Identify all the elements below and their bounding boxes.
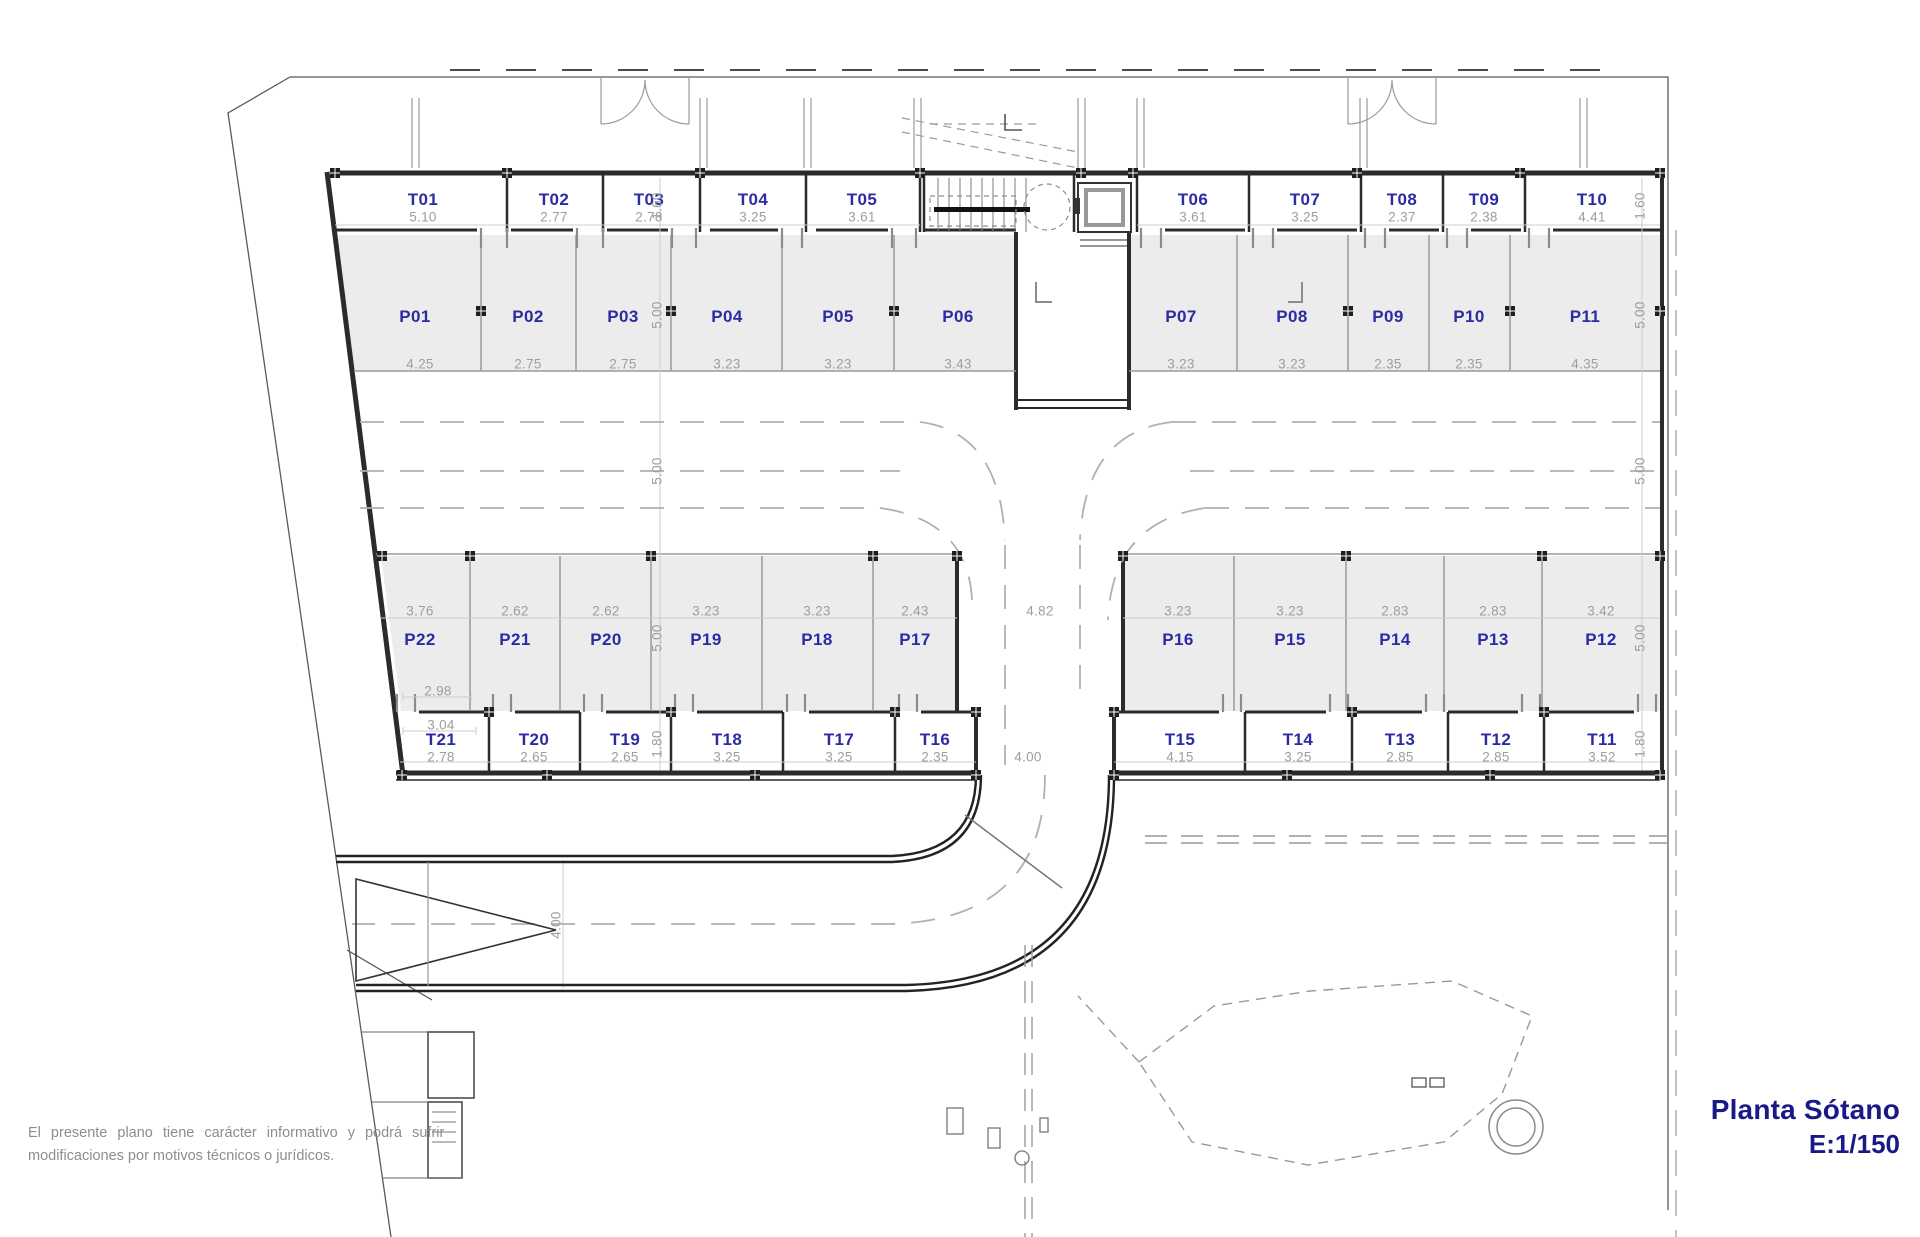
parking-dim: 2.43 — [901, 604, 928, 619]
height-dim: 1.80 — [650, 730, 665, 757]
turn-circle-dashed — [1024, 184, 1070, 230]
disclaimer-line1: El presente plano tiene carácter informa… — [28, 1122, 498, 1145]
parking-dim: 3.76 — [406, 604, 433, 619]
parking-dim: 3.23 — [824, 357, 851, 372]
parking-dim: 2.35 — [1455, 357, 1482, 372]
storage-dim: 3.25 — [825, 750, 852, 765]
parking-label: P10 — [1453, 307, 1484, 327]
parking-label: P04 — [711, 307, 742, 327]
storage-label: T14 — [1283, 730, 1314, 750]
storage-label: T04 — [738, 190, 769, 210]
parking-dim: 3.23 — [1167, 357, 1194, 372]
parking-dim: 3.43 — [944, 357, 971, 372]
curved-road — [336, 775, 1114, 991]
depth-dim: 5.00 — [1633, 624, 1648, 651]
storage-dim: 2.77 — [540, 210, 567, 225]
elevator-cab — [1086, 190, 1123, 225]
parking-label: P19 — [690, 630, 721, 650]
depth-dim: 5.00 — [650, 624, 665, 651]
garden-icons — [1412, 1078, 1444, 1087]
storage-dim: 4.41 — [1578, 210, 1605, 225]
parking-label: P12 — [1585, 630, 1616, 650]
parking-dim: 2.75 — [514, 357, 541, 372]
plan-scale: E:1/150 — [1540, 1129, 1900, 1160]
parking-label: P17 — [899, 630, 930, 650]
parking-label: P05 — [822, 307, 853, 327]
parking-dim: 2.62 — [592, 604, 619, 619]
parking-dim: 4.25 — [406, 357, 433, 372]
storage-dim: 3.61 — [848, 210, 875, 225]
storage-label: T12 — [1481, 730, 1512, 750]
disclaimer-line2: modificaciones por motivos técnicos o ju… — [28, 1145, 498, 1168]
drain-icons — [947, 1108, 1048, 1165]
road-joint — [965, 815, 1062, 888]
parking-dim: 3.23 — [803, 604, 830, 619]
storage-label: T15 — [1165, 730, 1196, 750]
storage-dim: 3.25 — [739, 210, 766, 225]
parking-label: P20 — [590, 630, 621, 650]
parking-label: P15 — [1274, 630, 1305, 650]
parking-dim: 2.83 — [1381, 604, 1408, 619]
storage-label: T13 — [1385, 730, 1416, 750]
storage-dim: 3.25 — [1291, 210, 1318, 225]
parking-label: P21 — [499, 630, 530, 650]
exterior-dashed — [1025, 836, 1668, 1237]
corridor-dim: 4.00 — [549, 911, 564, 938]
storage-label: T10 — [1577, 190, 1608, 210]
height-dim: 1.60 — [1633, 192, 1648, 219]
storage-dim: 3.25 — [713, 750, 740, 765]
height-dim: 1.60 — [650, 192, 665, 219]
storage-label: T16 — [920, 730, 951, 750]
parking-label: P07 — [1165, 307, 1196, 327]
parking-dim: 2.83 — [1479, 604, 1506, 619]
stall-sub-dim: 2.98 — [424, 684, 451, 699]
parking-label: P02 — [512, 307, 543, 327]
storage-label: T17 — [824, 730, 855, 750]
storage-dim: 2.37 — [1388, 210, 1415, 225]
storage-label: T09 — [1469, 190, 1500, 210]
parking-dim: 3.23 — [1278, 357, 1305, 372]
storage-label: T07 — [1290, 190, 1321, 210]
storage-label: T11 — [1587, 730, 1617, 750]
ramp-arrow — [356, 879, 556, 981]
storage-dim: 2.85 — [1482, 750, 1509, 765]
storage-label: T19 — [610, 730, 641, 750]
parking-dim: 2.35 — [1374, 357, 1401, 372]
title-block: Planta Sótano E:1/150 — [1540, 1094, 1900, 1160]
elevator-door — [1074, 198, 1080, 214]
road-depth-dim: 5.00 — [1633, 457, 1648, 484]
disclaimer-note: El presente plano tiene carácter informa… — [28, 1122, 498, 1168]
road-dim: 4.00 — [1014, 750, 1041, 765]
pool-circles — [1489, 1100, 1543, 1154]
parking-label: P16 — [1162, 630, 1193, 650]
parking-label: P11 — [1570, 307, 1601, 327]
storage-dim: 4.15 — [1166, 750, 1193, 765]
parking-dim: 3.23 — [1164, 604, 1191, 619]
storage-label: T20 — [519, 730, 550, 750]
parking-dim: 3.23 — [1276, 604, 1303, 619]
plan-title: Planta Sótano — [1540, 1094, 1900, 1126]
parking-dim: 4.35 — [1571, 357, 1598, 372]
parking-label: P14 — [1379, 630, 1410, 650]
storage-label: T05 — [847, 190, 878, 210]
storage-dim: 3.61 — [1179, 210, 1206, 225]
storage-dim: 5.10 — [409, 210, 436, 225]
upper-ramp-dashed — [902, 118, 1078, 168]
parking-dim: 2.75 — [609, 357, 636, 372]
elevator-pit-lines — [1080, 240, 1127, 246]
parking-dim: 3.23 — [692, 604, 719, 619]
depth-dim: 5.00 — [650, 301, 665, 328]
parking-label: P03 — [607, 307, 638, 327]
floor-plan-sheet: T01 5.10 T02 2.77 T03 2.78 T04 3.25 T05 … — [0, 0, 1920, 1237]
storage-dim: 3.25 — [1284, 750, 1311, 765]
storage-label: T08 — [1387, 190, 1418, 210]
storage-dim: 3.52 — [1588, 750, 1615, 765]
parking-dim: 2.62 — [501, 604, 528, 619]
storage-label: T01 — [408, 190, 439, 210]
parking-label: P09 — [1372, 307, 1403, 327]
parking-dim: 3.23 — [713, 357, 740, 372]
parking-label: P08 — [1276, 307, 1307, 327]
corner-bracket — [1036, 282, 1052, 302]
storage-dim: 2.35 — [921, 750, 948, 765]
parking-label: P18 — [801, 630, 832, 650]
storage-dim: 2.85 — [1386, 750, 1413, 765]
road-depth-dim: 5.00 — [650, 457, 665, 484]
storage-label: T06 — [1178, 190, 1209, 210]
floor-plan-linework — [0, 0, 1920, 1237]
storage-label: T21 — [426, 730, 457, 750]
depth-dim: 5.00 — [1633, 301, 1648, 328]
stair-treads — [938, 178, 1026, 232]
parking-label: P22 — [404, 630, 435, 650]
storage-label: T02 — [539, 190, 570, 210]
parking-dim: 3.42 — [1587, 604, 1614, 619]
parking-label: P01 — [399, 307, 430, 327]
storage-dim: 2.65 — [611, 750, 638, 765]
storage-label: T18 — [712, 730, 743, 750]
storage-dim: 2.65 — [520, 750, 547, 765]
storage-dim: 2.38 — [1470, 210, 1497, 225]
storage-dim: 2.78 — [427, 750, 454, 765]
parking-label: P06 — [942, 307, 973, 327]
height-dim: 1.80 — [1633, 730, 1648, 757]
parking-label: P13 — [1477, 630, 1508, 650]
ramp-dim: 4.82 — [1026, 604, 1053, 619]
upper-strip-walls — [412, 77, 1587, 168]
ramp-bracket — [1005, 114, 1022, 130]
